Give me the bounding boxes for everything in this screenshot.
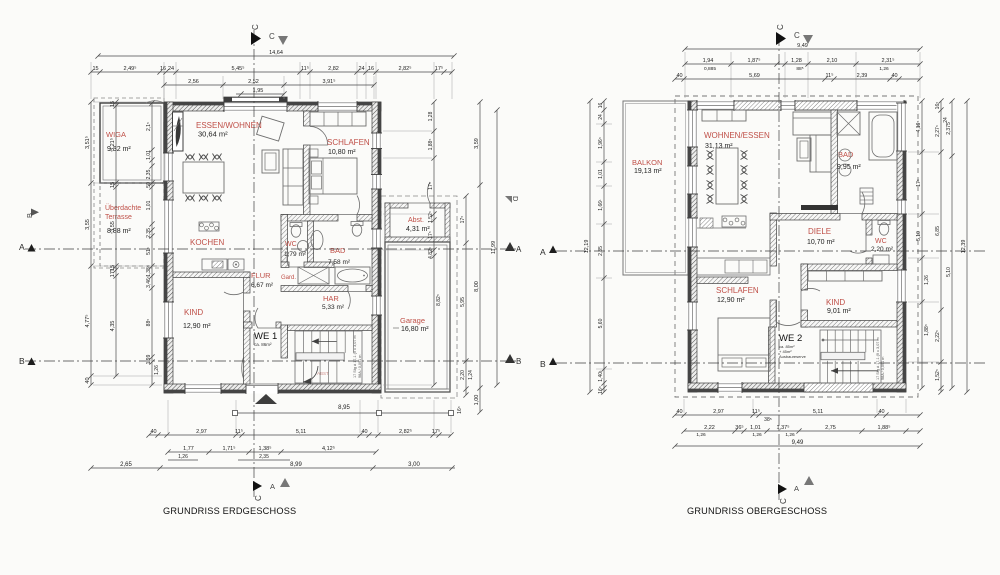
svg-text:1,88⁵: 1,88⁵ (428, 139, 434, 151)
svg-text:30,64 m²: 30,64 m² (198, 130, 228, 139)
svg-text:8,99: 8,99 (290, 462, 302, 468)
svg-text:40: 40 (891, 73, 897, 79)
svg-text:17 Stg á 17,1 (9 x 3,07 m: 17 Stg á 17,1 (9 x 3,07 m (353, 335, 357, 378)
svg-text:9,49: 9,49 (797, 43, 808, 49)
svg-text:A: A (19, 242, 25, 252)
svg-text:11⁵: 11⁵ (826, 72, 834, 79)
svg-text:1,87⁵: 1,87⁵ (748, 57, 761, 64)
svg-text:11⁵: 11⁵ (235, 428, 243, 435)
svg-text:98A / 0,091 m: 98A / 0,091 m (358, 355, 362, 378)
svg-text:1,26: 1,26 (696, 432, 706, 438)
svg-text:Ausbaureserve: Ausbaureserve (779, 354, 807, 359)
svg-text:2,35: 2,35 (146, 169, 152, 179)
svg-text:1,52⁵: 1,52⁵ (935, 369, 941, 381)
svg-text:3,51⁵: 3,51⁵ (84, 136, 91, 149)
svg-text:40: 40 (676, 409, 682, 415)
svg-text:1,94: 1,94 (703, 58, 714, 64)
svg-text:5,33 m²: 5,33 m² (322, 304, 345, 311)
svg-text:38⁵: 38⁵ (764, 417, 772, 423)
svg-text:24: 24 (358, 66, 364, 72)
svg-text:D: D (511, 196, 520, 202)
svg-text:24: 24 (943, 117, 949, 123)
svg-text:17⁵: 17⁵ (916, 179, 922, 187)
svg-text:8,95: 8,95 (338, 405, 350, 411)
svg-text:C: C (794, 31, 800, 40)
svg-text:B: B (25, 213, 34, 218)
svg-text:5,10: 5,10 (946, 267, 952, 277)
svg-text:1,28: 1,28 (791, 58, 802, 64)
svg-text:3,46⁵: 3,46⁵ (146, 276, 152, 288)
svg-text:5,11: 5,11 (813, 409, 823, 415)
svg-text:1,01: 1,01 (750, 425, 761, 431)
svg-text:1,26: 1,26 (752, 432, 762, 438)
svg-text:2,22⁵: 2,22⁵ (935, 330, 941, 342)
svg-text:B: B (516, 357, 521, 366)
svg-text:1,00: 1,00 (474, 395, 480, 406)
svg-text:88⁵: 88⁵ (146, 319, 152, 327)
svg-text:1,26: 1,26 (154, 365, 160, 375)
svg-text:5,45⁵: 5,45⁵ (232, 65, 245, 72)
svg-text:15: 15 (92, 66, 98, 72)
svg-text:5,60: 5,60 (598, 318, 604, 328)
svg-text:17⁵: 17⁵ (428, 231, 434, 239)
svg-text:2,27⁵: 2,27⁵ (935, 125, 941, 137)
svg-text:1,37⁵: 1,37⁵ (777, 424, 790, 431)
svg-text:24: 24 (598, 114, 604, 120)
svg-text:3,55: 3,55 (85, 219, 91, 230)
svg-text:GRUNDRISS OBERGESCHOSS: GRUNDRISS OBERGESCHOSS (687, 506, 827, 516)
svg-text:2,56: 2,56 (188, 79, 199, 85)
svg-text:1,96⁵: 1,96⁵ (598, 137, 604, 149)
svg-text:2,20 m²: 2,20 m² (871, 246, 894, 253)
svg-text:14,64: 14,64 (269, 50, 283, 56)
svg-text:3,00: 3,00 (408, 462, 420, 468)
svg-text:3,59: 3,59 (474, 138, 480, 149)
svg-text:12,19: 12,19 (584, 240, 590, 254)
svg-text:2,75: 2,75 (825, 425, 836, 431)
svg-text:24: 24 (168, 66, 174, 72)
svg-text:4,82⁵: 4,82⁵ (428, 247, 434, 259)
svg-text:WOHNEN/ESSEN: WOHNEN/ESSEN (704, 131, 770, 140)
svg-text:A: A (794, 484, 799, 493)
svg-text:16: 16 (368, 66, 374, 72)
svg-text:15: 15 (110, 101, 116, 107)
svg-text:SCHLAFEN: SCHLAFEN (716, 286, 759, 295)
svg-text:16⁵: 16⁵ (935, 102, 941, 110)
svg-text:ca. 86m²: ca. 86m² (254, 342, 272, 347)
svg-text:1,38⁵: 1,38⁵ (259, 445, 272, 452)
svg-text:1,77: 1,77 (183, 446, 194, 452)
svg-text:2,10: 2,10 (827, 58, 838, 64)
svg-text:15: 15 (110, 182, 116, 188)
svg-text:98A / 0,091 m: 98A / 0,091 m (881, 357, 885, 380)
svg-text:17⁵: 17⁵ (109, 269, 116, 277)
svg-text:1,95: 1,95 (253, 88, 264, 94)
svg-text:Überdachte: Überdachte (105, 204, 141, 212)
svg-text:1,40¹: 1,40¹ (598, 370, 604, 382)
svg-text:A: A (540, 247, 546, 257)
svg-text:36⁵: 36⁵ (735, 424, 743, 431)
svg-text:2,35: 2,35 (259, 454, 269, 460)
svg-text:2,39: 2,39 (857, 73, 868, 79)
svg-text:12,39: 12,39 (961, 240, 967, 254)
svg-text:2,22: 2,22 (704, 425, 715, 431)
svg-text:2,31⁵: 2,31⁵ (882, 57, 895, 64)
svg-text:1,52⁵: 1,52⁵ (428, 211, 434, 223)
svg-text:1,79 m²: 1,79 m² (284, 251, 307, 258)
svg-text:A: A (516, 245, 522, 254)
svg-text:C: C (251, 24, 260, 30)
svg-text:2,52: 2,52 (248, 79, 259, 85)
svg-text:HAR: HAR (323, 294, 339, 303)
svg-text:2,35: 2,35 (146, 228, 152, 238)
svg-text:Abst.: Abst. (408, 217, 424, 224)
svg-text:16,80 m²: 16,80 m² (401, 326, 429, 333)
svg-text:40: 40 (85, 377, 91, 383)
svg-text:4,12⁵: 4,12⁵ (322, 445, 335, 452)
svg-text:B: B (540, 359, 546, 369)
svg-text:8,82⁵: 8,82⁵ (436, 294, 442, 306)
svg-text:5,69: 5,69 (749, 73, 760, 79)
svg-text:5,11: 5,11 (296, 429, 306, 435)
svg-text:4,31 m²: 4,31 m² (406, 226, 430, 233)
svg-text:1,01: 1,01 (146, 150, 152, 160)
svg-text:19,13 m²: 19,13 m² (634, 168, 662, 175)
svg-text:SCHLAFEN: SCHLAFEN (327, 138, 370, 147)
svg-text:9,95 m²: 9,95 m² (837, 164, 861, 171)
svg-text:2,49⁵: 2,49⁵ (124, 65, 137, 72)
svg-text:9,01 m²: 9,01 m² (827, 308, 851, 315)
svg-text:4,16⁵: 4,16⁵ (916, 121, 922, 133)
svg-text:Gard.: Gard. (281, 275, 296, 281)
svg-text:KOCHEN: KOCHEN (190, 238, 224, 247)
svg-text:1,24: 1,24 (468, 370, 474, 380)
svg-text:Garage: Garage (400, 316, 425, 325)
svg-text:17⁵: 17⁵ (460, 216, 466, 224)
svg-text:7,58 m²: 7,58 m² (328, 259, 351, 266)
svg-text:40: 40 (361, 429, 367, 435)
svg-text:KIND: KIND (184, 308, 203, 317)
svg-text:Terrasse: Terrasse (105, 214, 132, 221)
svg-text:A: A (270, 482, 275, 491)
svg-text:50: 50 (146, 182, 152, 188)
svg-text:1,26: 1,26 (924, 275, 930, 285)
svg-text:11,99: 11,99 (491, 241, 497, 254)
svg-text:2,35: 2,35 (598, 246, 604, 256)
svg-text:WE 2: WE 2 (779, 333, 802, 344)
svg-text:1,01: 1,01 (146, 200, 152, 210)
svg-text:1,26: 1,26 (178, 454, 188, 460)
svg-text:31,13 m²: 31,13 m² (705, 143, 733, 150)
svg-text:1,01: 1,01 (598, 169, 604, 179)
svg-text:2,82: 2,82 (328, 66, 339, 72)
svg-text:WC: WC (285, 241, 297, 248)
svg-text:2,82⁵: 2,82⁵ (399, 65, 412, 72)
svg-text:6,85: 6,85 (935, 226, 941, 236)
svg-text:1,99: 1,99 (146, 354, 152, 364)
svg-text:51⁵: 51⁵ (146, 247, 152, 255)
svg-text:11⁵: 11⁵ (301, 65, 309, 72)
svg-text:WE 1: WE 1 (254, 331, 277, 342)
svg-text:2,97: 2,97 (713, 409, 724, 415)
svg-text:16⁵: 16⁵ (457, 406, 463, 414)
svg-text:B: B (19, 356, 25, 366)
svg-text:10,80 m²: 10,80 m² (328, 149, 356, 156)
svg-text:1,26: 1,26 (785, 432, 795, 438)
svg-text:1,66¹: 1,66¹ (598, 199, 604, 211)
svg-text:12,90 m²: 12,90 m² (183, 323, 211, 330)
svg-text:40: 40 (676, 73, 682, 79)
svg-text:11⁵: 11⁵ (752, 408, 760, 415)
svg-text:1,71⁵: 1,71⁵ (223, 445, 236, 452)
svg-text:17⁵: 17⁵ (435, 65, 443, 72)
svg-text:C: C (776, 24, 785, 30)
svg-text:2,375: 2,375 (946, 122, 952, 135)
svg-text:ABST: ABST (317, 371, 329, 376)
svg-text:C: C (269, 32, 275, 41)
svg-text:6,67 m²: 6,67 m² (251, 282, 274, 289)
svg-text:1,38⁵: 1,38⁵ (146, 265, 152, 277)
svg-text:1,28: 1,28 (428, 111, 434, 121)
svg-text:40: 40 (150, 429, 156, 435)
svg-text:16: 16 (598, 103, 604, 109)
svg-text:4,35: 4,35 (110, 321, 116, 332)
svg-text:5,95: 5,95 (460, 297, 466, 307)
svg-text:C: C (779, 498, 788, 504)
svg-text:4,77⁵: 4,77⁵ (84, 315, 91, 328)
svg-text:16: 16 (160, 66, 166, 72)
svg-text:17 Stg á 17,1 (9 x 3,07 m: 17 Stg á 17,1 (9 x 3,07 m (876, 337, 880, 380)
svg-text:5,10: 5,10 (916, 231, 922, 241)
svg-text:C: C (254, 495, 263, 501)
svg-text:2,82⁵: 2,82⁵ (399, 428, 412, 435)
svg-text:DIELE: DIELE (808, 227, 831, 236)
svg-text:2,65: 2,65 (120, 462, 132, 468)
svg-text:12,90 m²: 12,90 m² (717, 297, 745, 304)
svg-text:10,70 m²: 10,70 m² (807, 239, 835, 246)
svg-text:8,00: 8,00 (474, 281, 480, 292)
svg-text:3,55: 3,55 (110, 221, 116, 232)
svg-text:9,49: 9,49 (792, 440, 804, 446)
svg-text:1,88⁵: 1,88⁵ (878, 424, 891, 431)
svg-text:BAD: BAD (330, 246, 346, 255)
svg-text:0,885: 0,885 (704, 66, 716, 72)
svg-text:WC: WC (875, 238, 887, 245)
svg-text:2,1⁵: 2,1⁵ (146, 122, 152, 131)
svg-text:3,91⁵: 3,91⁵ (323, 78, 336, 85)
svg-text:BALKON: BALKON (632, 158, 662, 167)
svg-text:17⁵: 17⁵ (428, 182, 434, 190)
svg-text:2,97: 2,97 (196, 429, 207, 435)
svg-text:KIND: KIND (826, 298, 845, 307)
svg-text:17⁵: 17⁵ (432, 428, 440, 435)
svg-text:GRUNDRISS ERDGESCHOSS: GRUNDRISS ERDGESCHOSS (163, 506, 296, 516)
svg-text:1,88⁵: 1,88⁵ (924, 324, 930, 336)
svg-text:1,26: 1,26 (879, 66, 889, 72)
svg-text:16⁵: 16⁵ (598, 386, 604, 394)
svg-text:40: 40 (878, 409, 884, 415)
svg-text:3,21⁵: 3,21⁵ (109, 138, 116, 151)
svg-text:88⁵: 88⁵ (796, 66, 803, 72)
svg-text:2,20: 2,20 (460, 370, 466, 380)
